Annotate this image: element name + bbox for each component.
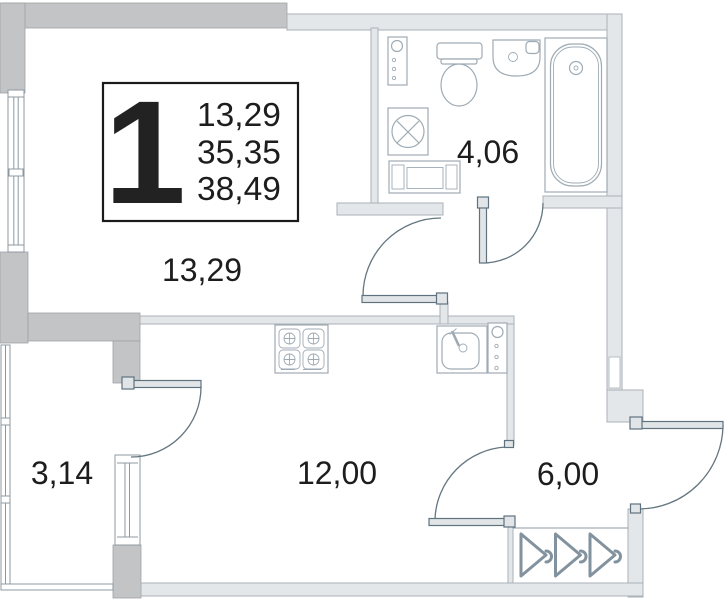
door-leaf xyxy=(362,296,441,303)
wall-balcony-pier-bottom xyxy=(113,545,141,598)
wall-living-balcony xyxy=(28,313,140,341)
door-latch xyxy=(631,504,641,513)
bathroom-area-label: 4,06 xyxy=(457,134,519,170)
wall-kitchen-hall xyxy=(507,324,514,445)
door-jamb-cap xyxy=(505,441,514,448)
door-leaf xyxy=(429,519,510,526)
balcony-block-window-icon xyxy=(115,455,140,545)
wall-top-light xyxy=(287,14,622,30)
wall-living-bathroom xyxy=(371,28,378,203)
legend-area: 35,35 xyxy=(197,135,281,172)
wall-kitchen-top xyxy=(140,316,514,324)
hallway-area-label: 6,00 xyxy=(537,456,599,492)
door-hinge xyxy=(504,516,515,527)
floor-plan-canvas: 13,29 4,06 3,14 12,00 6,00 1 13,29 35,35… xyxy=(0,0,727,600)
door-leaf xyxy=(133,381,201,388)
washing-machine-icon xyxy=(388,108,428,155)
door-hinge xyxy=(478,197,489,208)
wall-bathroom-south-left xyxy=(337,203,443,215)
bathtub-icon xyxy=(545,38,607,192)
living-room-area-label: 13,29 xyxy=(162,252,242,288)
apartment-number: 1 xyxy=(104,71,186,235)
wall-shaft-niche xyxy=(609,357,620,388)
legend-living-area: 13,29 xyxy=(197,97,281,134)
wall-bottom xyxy=(141,583,643,596)
legend-box: 1 13,29 35,35 38,49 xyxy=(103,71,298,235)
door-hinge xyxy=(630,417,642,429)
kitchen-area-label: 12,00 xyxy=(297,455,377,491)
plumbing-riser-icon xyxy=(388,37,407,85)
door-leaf xyxy=(480,203,487,263)
floor-plan: 13,29 4,06 3,14 12,00 6,00 1 13,29 35,35… xyxy=(0,0,727,600)
kitchen-riser-icon xyxy=(488,323,507,373)
balcony-area-label: 3,14 xyxy=(31,455,93,491)
washbasin-icon xyxy=(493,40,540,76)
balcony-window-icon xyxy=(1,345,10,588)
stove-icon xyxy=(275,325,328,373)
door-hinge xyxy=(437,293,448,304)
wall-closet-left xyxy=(508,527,513,583)
wall-left-upper xyxy=(0,3,25,93)
legend-total-area: 38,49 xyxy=(197,171,281,208)
door-leaf xyxy=(640,422,723,429)
living-room-window-icon xyxy=(8,90,24,252)
balcony-bottom-edge xyxy=(1,584,113,590)
bathroom-cabinet-icon xyxy=(389,161,460,193)
door-hinge xyxy=(122,377,134,389)
wall-living-door-jamb xyxy=(440,302,448,324)
wall-left-middle xyxy=(0,252,28,343)
wall-top-dark xyxy=(3,3,287,28)
wall-bathroom-south-right xyxy=(543,196,622,208)
kitchen-sink-icon xyxy=(437,326,487,373)
